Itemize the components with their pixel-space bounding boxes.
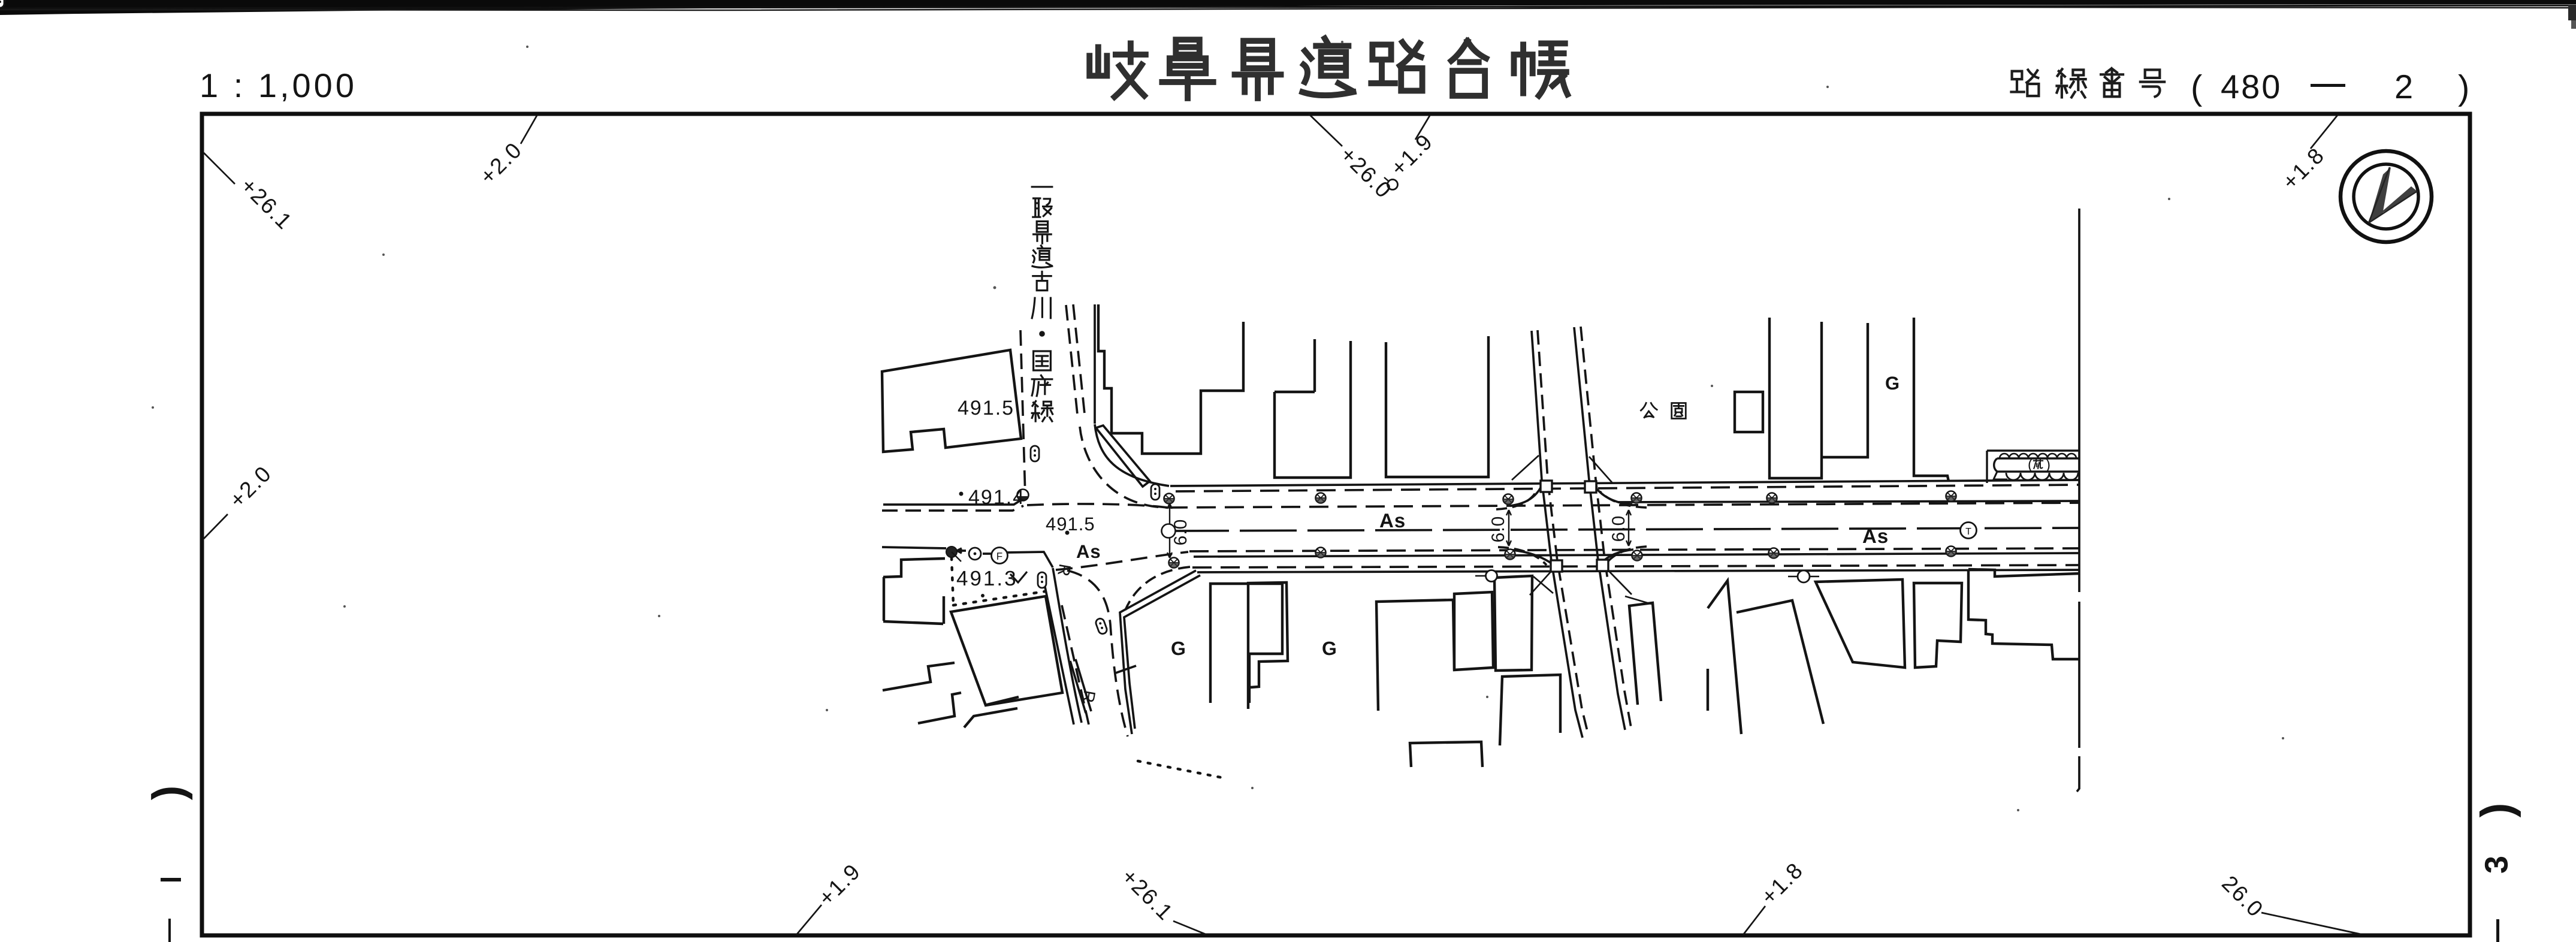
svg-text:3: 3 bbox=[2478, 856, 2514, 874]
svg-text:1 : 1,000: 1 : 1,000 bbox=[200, 67, 357, 104]
svg-text:(: ( bbox=[2028, 457, 2033, 473]
svg-text:F: F bbox=[996, 551, 1002, 562]
svg-text:6.0: 6.0 bbox=[1171, 519, 1191, 546]
svg-text:G: G bbox=[1322, 638, 1337, 659]
svg-text:6.0: 6.0 bbox=[1609, 515, 1629, 542]
svg-text:G: G bbox=[1171, 638, 1186, 659]
svg-text:As: As bbox=[1862, 525, 1889, 547]
svg-text:): ) bbox=[2458, 68, 2469, 107]
svg-text:6.0: 6.0 bbox=[1488, 516, 1508, 543]
svg-text:As: As bbox=[1379, 509, 1406, 532]
svg-text:2: 2 bbox=[2394, 68, 2413, 105]
svg-text:(: ( bbox=[2191, 68, 2202, 107]
svg-text:480: 480 bbox=[2221, 68, 2282, 105]
svg-text:): ) bbox=[2046, 457, 2050, 473]
svg-text:491.5: 491.5 bbox=[958, 397, 1014, 419]
svg-text:491.5: 491.5 bbox=[1046, 514, 1095, 535]
svg-text:As: As bbox=[1076, 541, 1101, 562]
svg-text:T: T bbox=[1965, 527, 1971, 537]
svg-text:G: G bbox=[1885, 373, 1899, 394]
svg-text:491.3: 491.3 bbox=[956, 567, 1018, 590]
svg-text:491.4: 491.4 bbox=[968, 486, 1025, 509]
svg-text:): ) bbox=[2472, 803, 2521, 818]
svg-text:(: ( bbox=[150, 786, 200, 801]
